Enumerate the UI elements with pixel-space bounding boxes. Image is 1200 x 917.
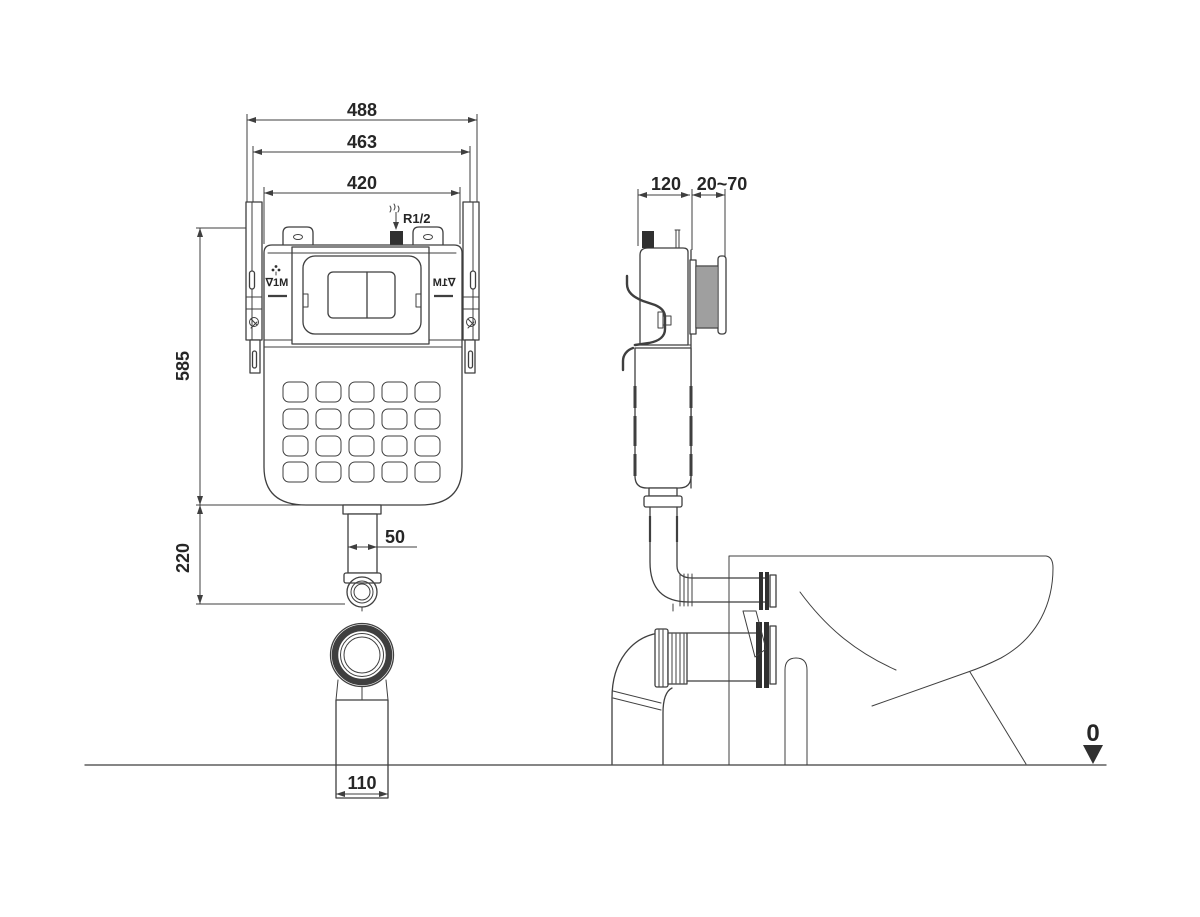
arrowhead-icon bbox=[197, 228, 203, 237]
bowl-outer-curve bbox=[968, 556, 1053, 672]
dim-outlet-width-value: 110 bbox=[347, 773, 376, 793]
fixing-tab-left bbox=[283, 227, 313, 247]
arrowhead-icon bbox=[336, 791, 345, 797]
datum-triangle-icon bbox=[1083, 745, 1103, 764]
arrowhead-icon bbox=[197, 505, 203, 514]
datum-marker: 0 bbox=[1083, 720, 1103, 764]
toilet-bowl bbox=[743, 556, 1053, 765]
elbow-seal-ring bbox=[335, 628, 389, 682]
dim-height-tank-value: 585 bbox=[173, 351, 193, 381]
front-view: 488 463 420 585 220 bbox=[173, 100, 479, 798]
dim-width-tank-value: 420 bbox=[347, 173, 377, 193]
trapway bbox=[785, 658, 807, 765]
water-flow-icon bbox=[390, 204, 399, 230]
arrowhead-icon bbox=[681, 192, 690, 198]
vent-pipe bbox=[675, 230, 680, 248]
cistern-front: ∇1M ∇1M bbox=[264, 245, 462, 505]
flush-pipe bbox=[644, 488, 776, 611]
flush-plate bbox=[303, 256, 421, 334]
actuator-shaft bbox=[690, 256, 726, 334]
datum-label: 0 bbox=[1086, 720, 1099, 747]
outlet-pipe-front bbox=[343, 505, 381, 611]
pipe-flange bbox=[765, 572, 769, 610]
bowl-inlet-horn bbox=[743, 611, 766, 657]
dim-width-outer-value: 488 bbox=[347, 100, 377, 120]
rail-slot bbox=[469, 351, 473, 368]
flush-plate-window bbox=[292, 247, 429, 344]
arrowhead-icon bbox=[461, 149, 470, 155]
arrowhead-icon bbox=[451, 190, 460, 196]
inlet-thread-label: R1/2 bbox=[403, 211, 430, 226]
arrowhead-icon bbox=[264, 190, 273, 196]
shaft-flange bbox=[718, 256, 726, 334]
dim-depth-value: 120 bbox=[651, 174, 681, 194]
inlet-connector-side bbox=[642, 231, 654, 248]
arrowhead-icon bbox=[379, 791, 388, 797]
level-mark-right-label: ∇1M bbox=[433, 277, 457, 289]
arrowhead-icon bbox=[247, 117, 256, 123]
arrowhead-icon bbox=[197, 496, 203, 505]
bowl-inner-curve bbox=[800, 592, 896, 670]
mounting-rail-right bbox=[463, 202, 479, 373]
rail-slot bbox=[253, 351, 257, 368]
pipe-flange bbox=[759, 572, 763, 610]
waste-flange bbox=[764, 622, 769, 688]
dim-width-rails-value: 463 bbox=[347, 132, 377, 152]
dim-pipe-value: 50 bbox=[385, 527, 405, 547]
cistern-side bbox=[634, 230, 691, 488]
floor-outlet-elbow bbox=[331, 624, 394, 799]
mounting-rail-left bbox=[246, 202, 262, 373]
fixing-tab-right bbox=[413, 227, 443, 247]
drawing-canvas: 488 463 420 585 220 bbox=[0, 0, 1200, 912]
arrowhead-icon bbox=[638, 192, 647, 198]
dim-height-outlet-value: 220 bbox=[173, 543, 193, 573]
dim-height-outlet: 220 bbox=[173, 505, 203, 604]
rail-slot bbox=[471, 271, 476, 289]
rail-slot bbox=[250, 271, 255, 289]
arrowhead-icon bbox=[253, 149, 262, 155]
side-view: 120 20~70 bbox=[612, 174, 1103, 765]
arrowhead-icon bbox=[468, 117, 477, 123]
arrowhead-icon bbox=[197, 595, 203, 604]
dim-outlet-width: 110 bbox=[336, 773, 388, 797]
installation-drawing: 488 463 420 585 220 bbox=[0, 0, 1200, 912]
level-mark-left-label: ∇1M bbox=[265, 277, 289, 289]
dim-adjust-range-value: 20~70 bbox=[697, 174, 748, 194]
